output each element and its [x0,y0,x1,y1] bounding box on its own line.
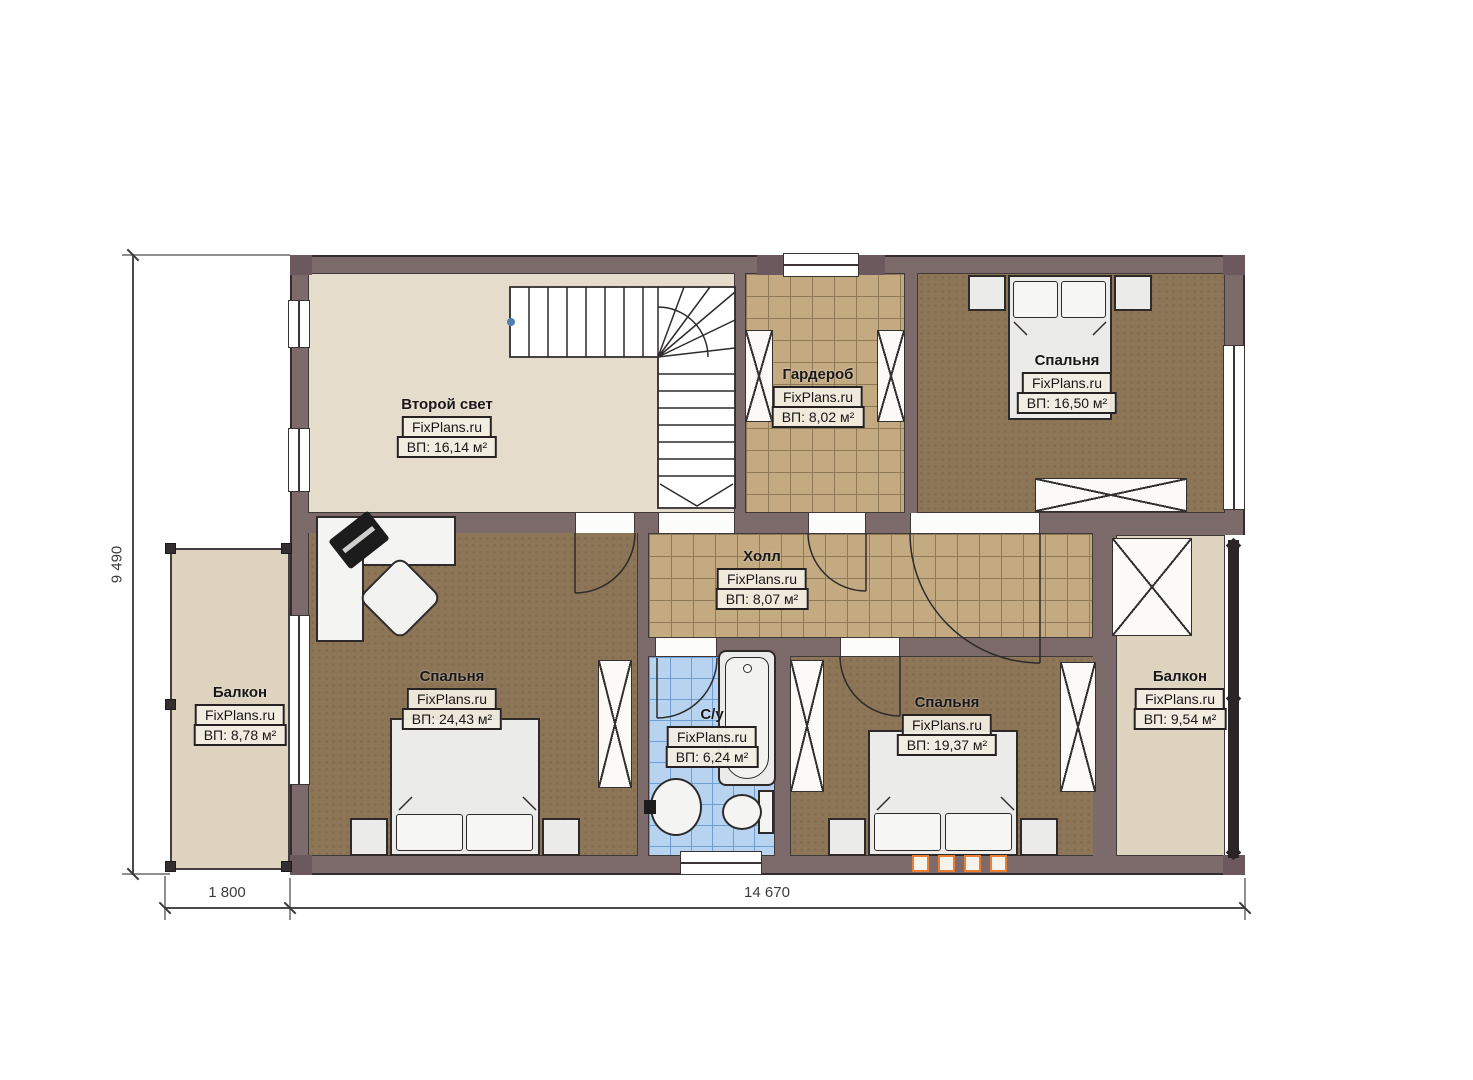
door-opening-stairs [658,513,735,533]
pillow [396,814,463,851]
room-name: С/у [700,706,723,723]
nightstand [350,818,388,856]
door-opening-hall-2 [910,513,1040,533]
sink [650,778,702,836]
extension-line [164,876,166,920]
brand-label: FixPlans.ru [195,704,285,726]
brand-label: FixPlans.ru [717,568,807,590]
nightstand [828,818,866,856]
area-label: ВП: 19,37 м² [897,734,997,756]
brand-label: FixPlans.ru [902,714,992,736]
railing-post [165,861,176,872]
room-label-bedroom-right: Спальня FixPlans.ru ВП: 19,37 м² [897,694,997,756]
pillow [874,813,941,851]
dimension-label-height: 9 490 [109,530,126,600]
nightstand [1114,275,1152,311]
pillow [1061,281,1106,318]
closet [598,660,632,788]
extension-line [122,873,170,875]
closet [1060,662,1096,792]
railing-post [281,861,292,872]
area-label: ВП: 24,43 м² [402,708,502,730]
dimension-label-balcony-width: 1 800 [208,884,246,901]
pillow [466,814,533,851]
closet [877,330,905,422]
window-left-1 [288,300,310,348]
room-label-balcony-right: Балкон FixPlans.ru ВП: 9,54 м² [1134,668,1227,730]
sink-tap [644,800,656,814]
dimension-label-main-width: 14 670 [744,884,790,901]
dimension-line-vertical [132,255,134,875]
room-label-wardrobe: Гардероб FixPlans.ru ВП: 8,02 м² [772,366,865,428]
nightstand [968,275,1006,311]
room-name: Балкон [1153,668,1207,685]
room-label-bedroom-top-right: Спальня FixPlans.ru ВП: 16,50 м² [1017,352,1117,414]
wall-pier [1223,255,1245,275]
extension-line [289,878,291,920]
closet [1112,538,1192,636]
radiator-marker [912,855,929,872]
door-opening-bathroom [655,638,717,656]
window-left-2 [288,428,310,492]
area-label: ВП: 8,02 м² [772,406,865,428]
window-right [1223,345,1245,510]
brand-label: FixPlans.ru [1022,372,1112,394]
closet [790,660,824,792]
toilet-bowl [722,794,762,830]
area-label: ВП: 16,50 м² [1017,392,1117,414]
area-label: ВП: 6,24 м² [666,746,759,768]
door-opening-bedroom-left [575,513,635,533]
brand-label: FixPlans.ru [773,386,863,408]
wall-pier [757,255,783,275]
extension-line [1244,878,1246,920]
bathtub-drain [743,664,752,673]
radiator-marker [964,855,981,872]
laptop-screen [342,526,375,553]
wall-pier [290,855,312,875]
closet [1035,478,1187,512]
window-bottom [680,851,762,875]
area-label: ВП: 8,07 м² [716,588,809,610]
brand-label: FixPlans.ru [1135,688,1225,710]
wall-pier [290,255,312,275]
room-label-bedroom-left: Спальня FixPlans.ru ВП: 24,43 м² [402,668,502,730]
wall-interior-v-wardrobe-right [905,273,917,513]
railing-post [281,543,292,554]
room-name: Гардероб [783,366,854,383]
radiator-marker [990,855,1007,872]
area-label: ВП: 16,14 м² [397,436,497,458]
room-label-balcony-left: Балкон FixPlans.ru ВП: 8,78 м² [194,684,287,746]
room-floor-second-light [308,273,735,513]
area-label: ВП: 8,78 м² [194,724,287,746]
room-name: Спальня [915,694,980,711]
door-opening-bedroom-right [840,638,900,656]
railing-post [165,699,176,710]
window-top [783,253,859,277]
nightstand [542,818,580,856]
nightstand [1020,818,1058,856]
pillow [1013,281,1058,318]
room-name: Холл [743,548,781,565]
brand-label: FixPlans.ru [407,688,497,710]
railing-post [165,543,176,554]
radiator-marker [938,855,955,872]
wall-pier [859,255,885,275]
wall-interior-v-bath [775,656,790,856]
room-name: Спальня [420,668,485,685]
closet [745,330,773,422]
dimension-line-bottom [165,907,1245,909]
room-name: Второй свет [401,396,493,413]
area-label: ВП: 9,54 м² [1134,708,1227,730]
room-label-second-light: Второй свет FixPlans.ru ВП: 16,14 м² [397,396,497,458]
window-left-balcony-door [288,615,310,785]
floor-plan-canvas: Второй свет FixPlans.ru ВП: 16,14 м² Гар… [0,0,1473,1080]
room-label-hall: Холл FixPlans.ru ВП: 8,07 м² [716,548,809,610]
wall-interior-v-wardrobe-left [735,273,745,513]
room-name: Спальня [1035,352,1100,369]
brand-label: FixPlans.ru [402,416,492,438]
pillow [945,813,1012,851]
room-name: Балкон [213,684,267,701]
room-label-bathroom: С/у FixPlans.ru ВП: 6,24 м² [666,706,759,768]
extension-line [122,254,290,256]
brand-label: FixPlans.ru [667,726,757,748]
door-opening-hall-1 [808,513,866,533]
